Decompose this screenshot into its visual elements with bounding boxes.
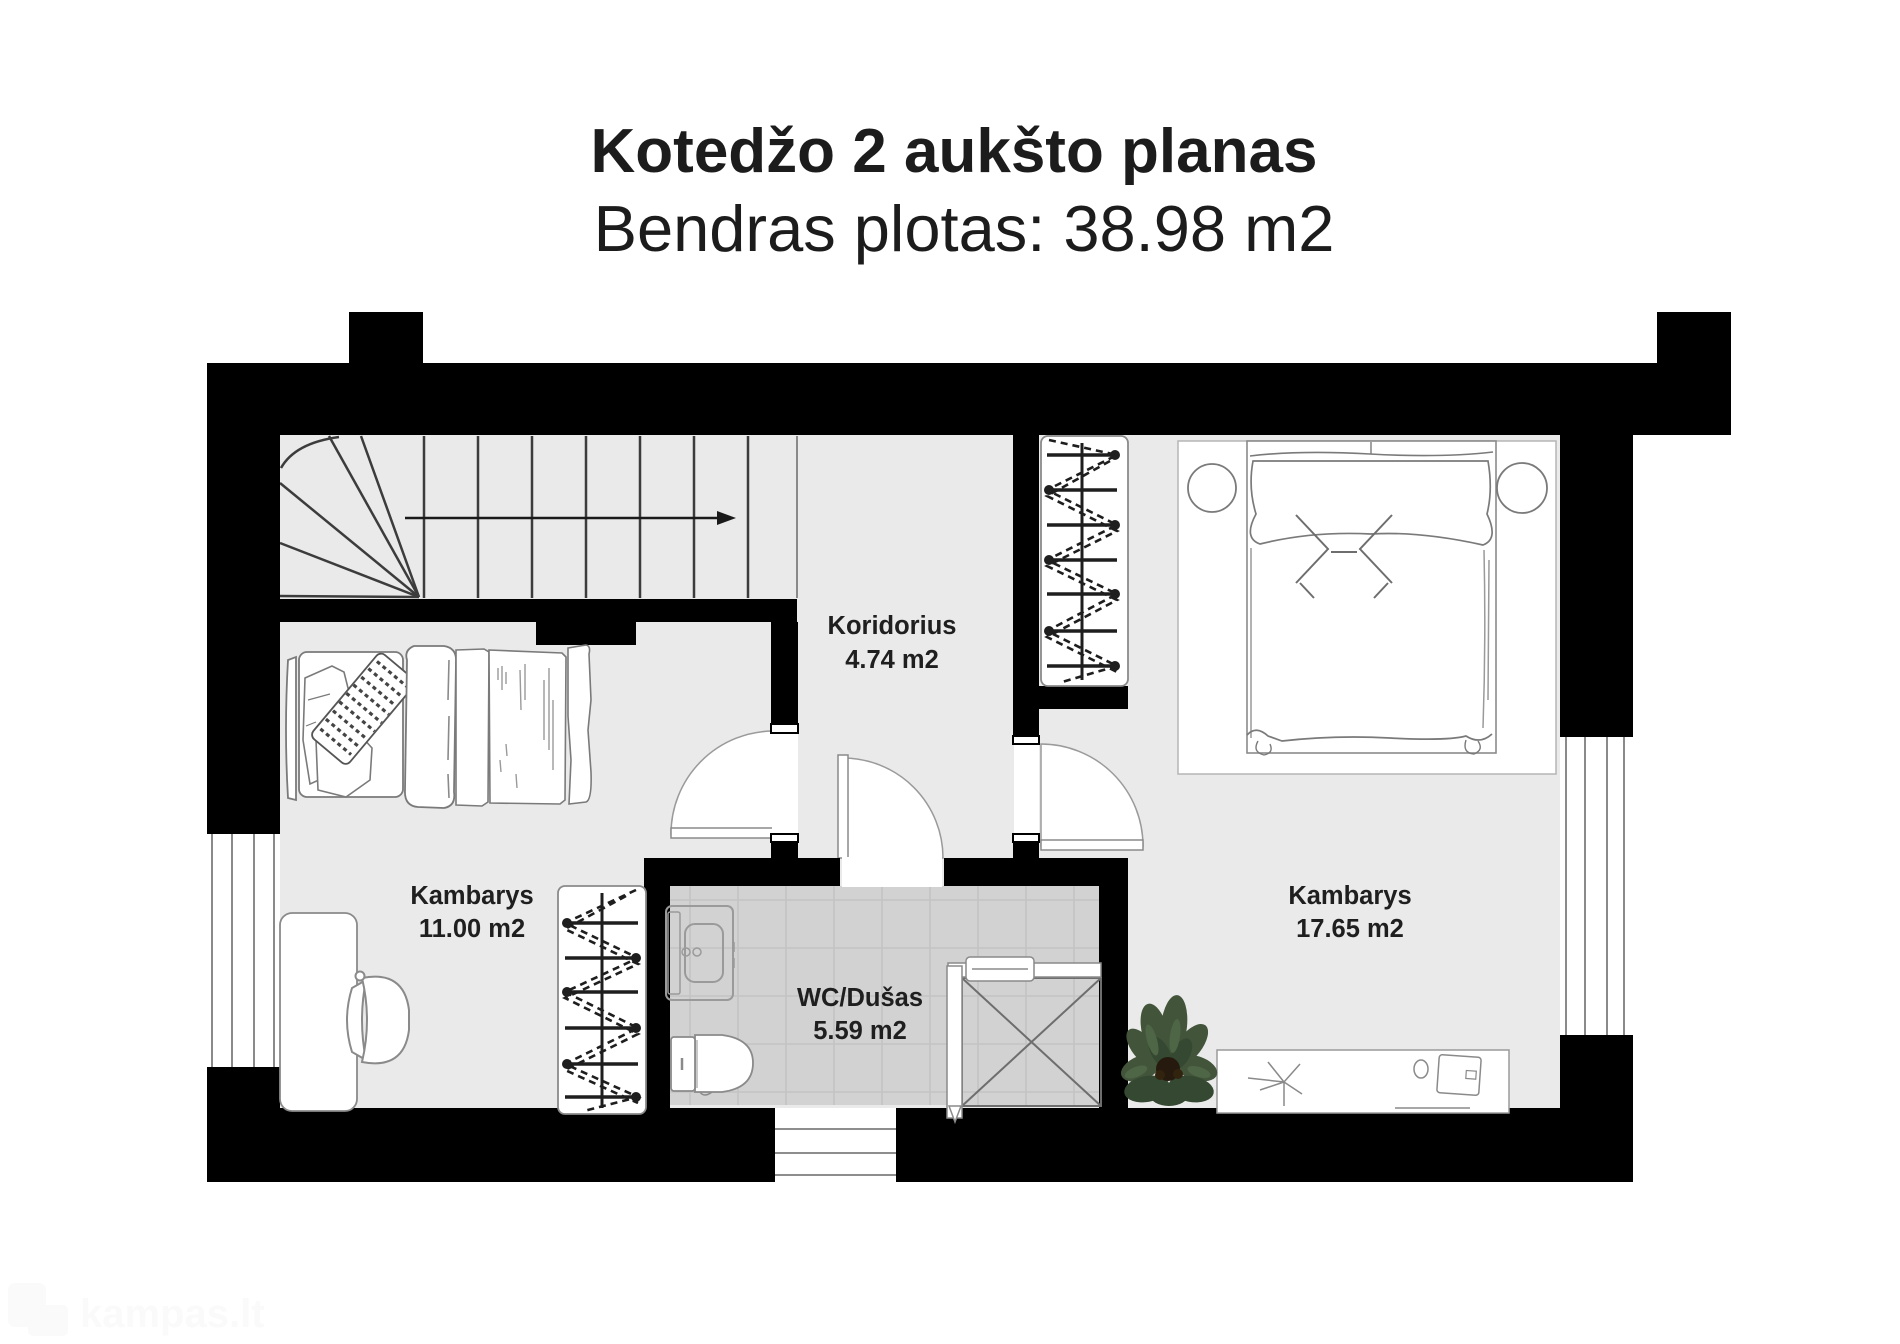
svg-text:4.74 m2: 4.74 m2 xyxy=(845,646,939,674)
svg-text:11.00 m2: 11.00 m2 xyxy=(419,915,525,943)
svg-text:Kambarys: Kambarys xyxy=(410,882,533,910)
svg-text:Bendras plotas: 38.98 m2: Bendras plotas: 38.98 m2 xyxy=(594,192,1335,265)
svg-text:5.59 m2: 5.59 m2 xyxy=(813,1017,907,1045)
svg-text:WC/Dušas: WC/Dušas xyxy=(797,984,923,1012)
svg-text:Kambarys: Kambarys xyxy=(1288,882,1411,910)
svg-text:kampas.lt: kampas.lt xyxy=(80,1292,265,1336)
svg-text:17.65 m2: 17.65 m2 xyxy=(1296,915,1404,943)
svg-text:Koridorius: Koridorius xyxy=(828,612,957,640)
svg-text:Kotedžo 2 aukšto planas: Kotedžo 2 aukšto planas xyxy=(591,117,1318,186)
